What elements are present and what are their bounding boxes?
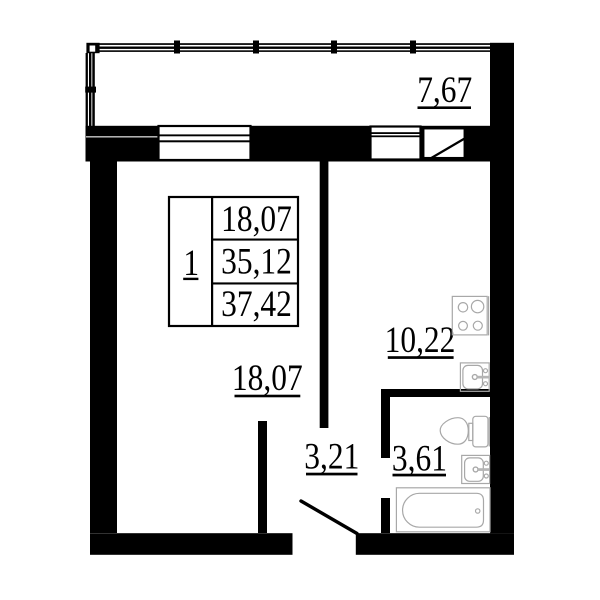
svg-text:18,07: 18,07 (232, 358, 303, 399)
svg-text:35,12: 35,12 (221, 241, 292, 282)
svg-text:7,67: 7,67 (417, 69, 472, 110)
svg-text:18,07: 18,07 (221, 199, 292, 240)
svg-text:1: 1 (183, 243, 199, 284)
svg-text:3,61: 3,61 (392, 438, 447, 479)
svg-text:3,21: 3,21 (304, 436, 359, 477)
svg-text:10,22: 10,22 (385, 320, 456, 361)
svg-text:37,42: 37,42 (221, 283, 292, 324)
